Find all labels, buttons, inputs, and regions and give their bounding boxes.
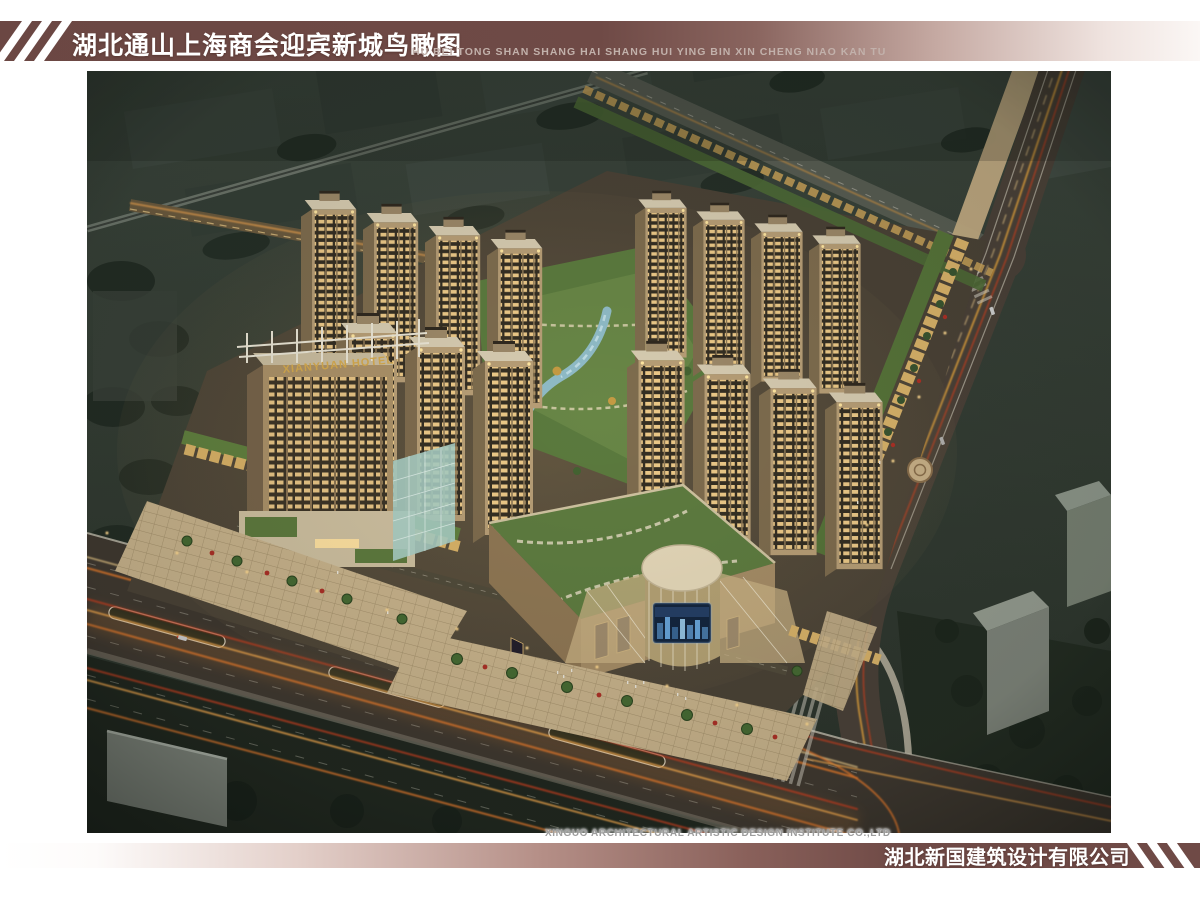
top-shade xyxy=(87,71,1111,161)
company-name-cn: 湖北新国建筑设计有限公司 xyxy=(884,841,1130,870)
page-title: 湖北通山上海商会迎宾新城鸟瞰图 xyxy=(72,26,462,62)
presentation-board: 湖北通山上海商会迎宾新城鸟瞰图 HU BEI TONG SHAN SHANG H… xyxy=(0,0,1200,900)
page-subtitle-pinyin: HU BEI TONG SHAN SHANG HAI SHANG HUI YIN… xyxy=(412,46,886,58)
aerial-rendering-svg: XIANYUAN HOTEL xyxy=(87,71,1111,833)
vignette-overlay xyxy=(87,71,1111,833)
institute-name-en: XINGUO ARCHITECTURAL ARTISTIC DESIGN INS… xyxy=(545,828,891,839)
aerial-rendering: XIANYUAN HOTEL xyxy=(87,71,1111,833)
